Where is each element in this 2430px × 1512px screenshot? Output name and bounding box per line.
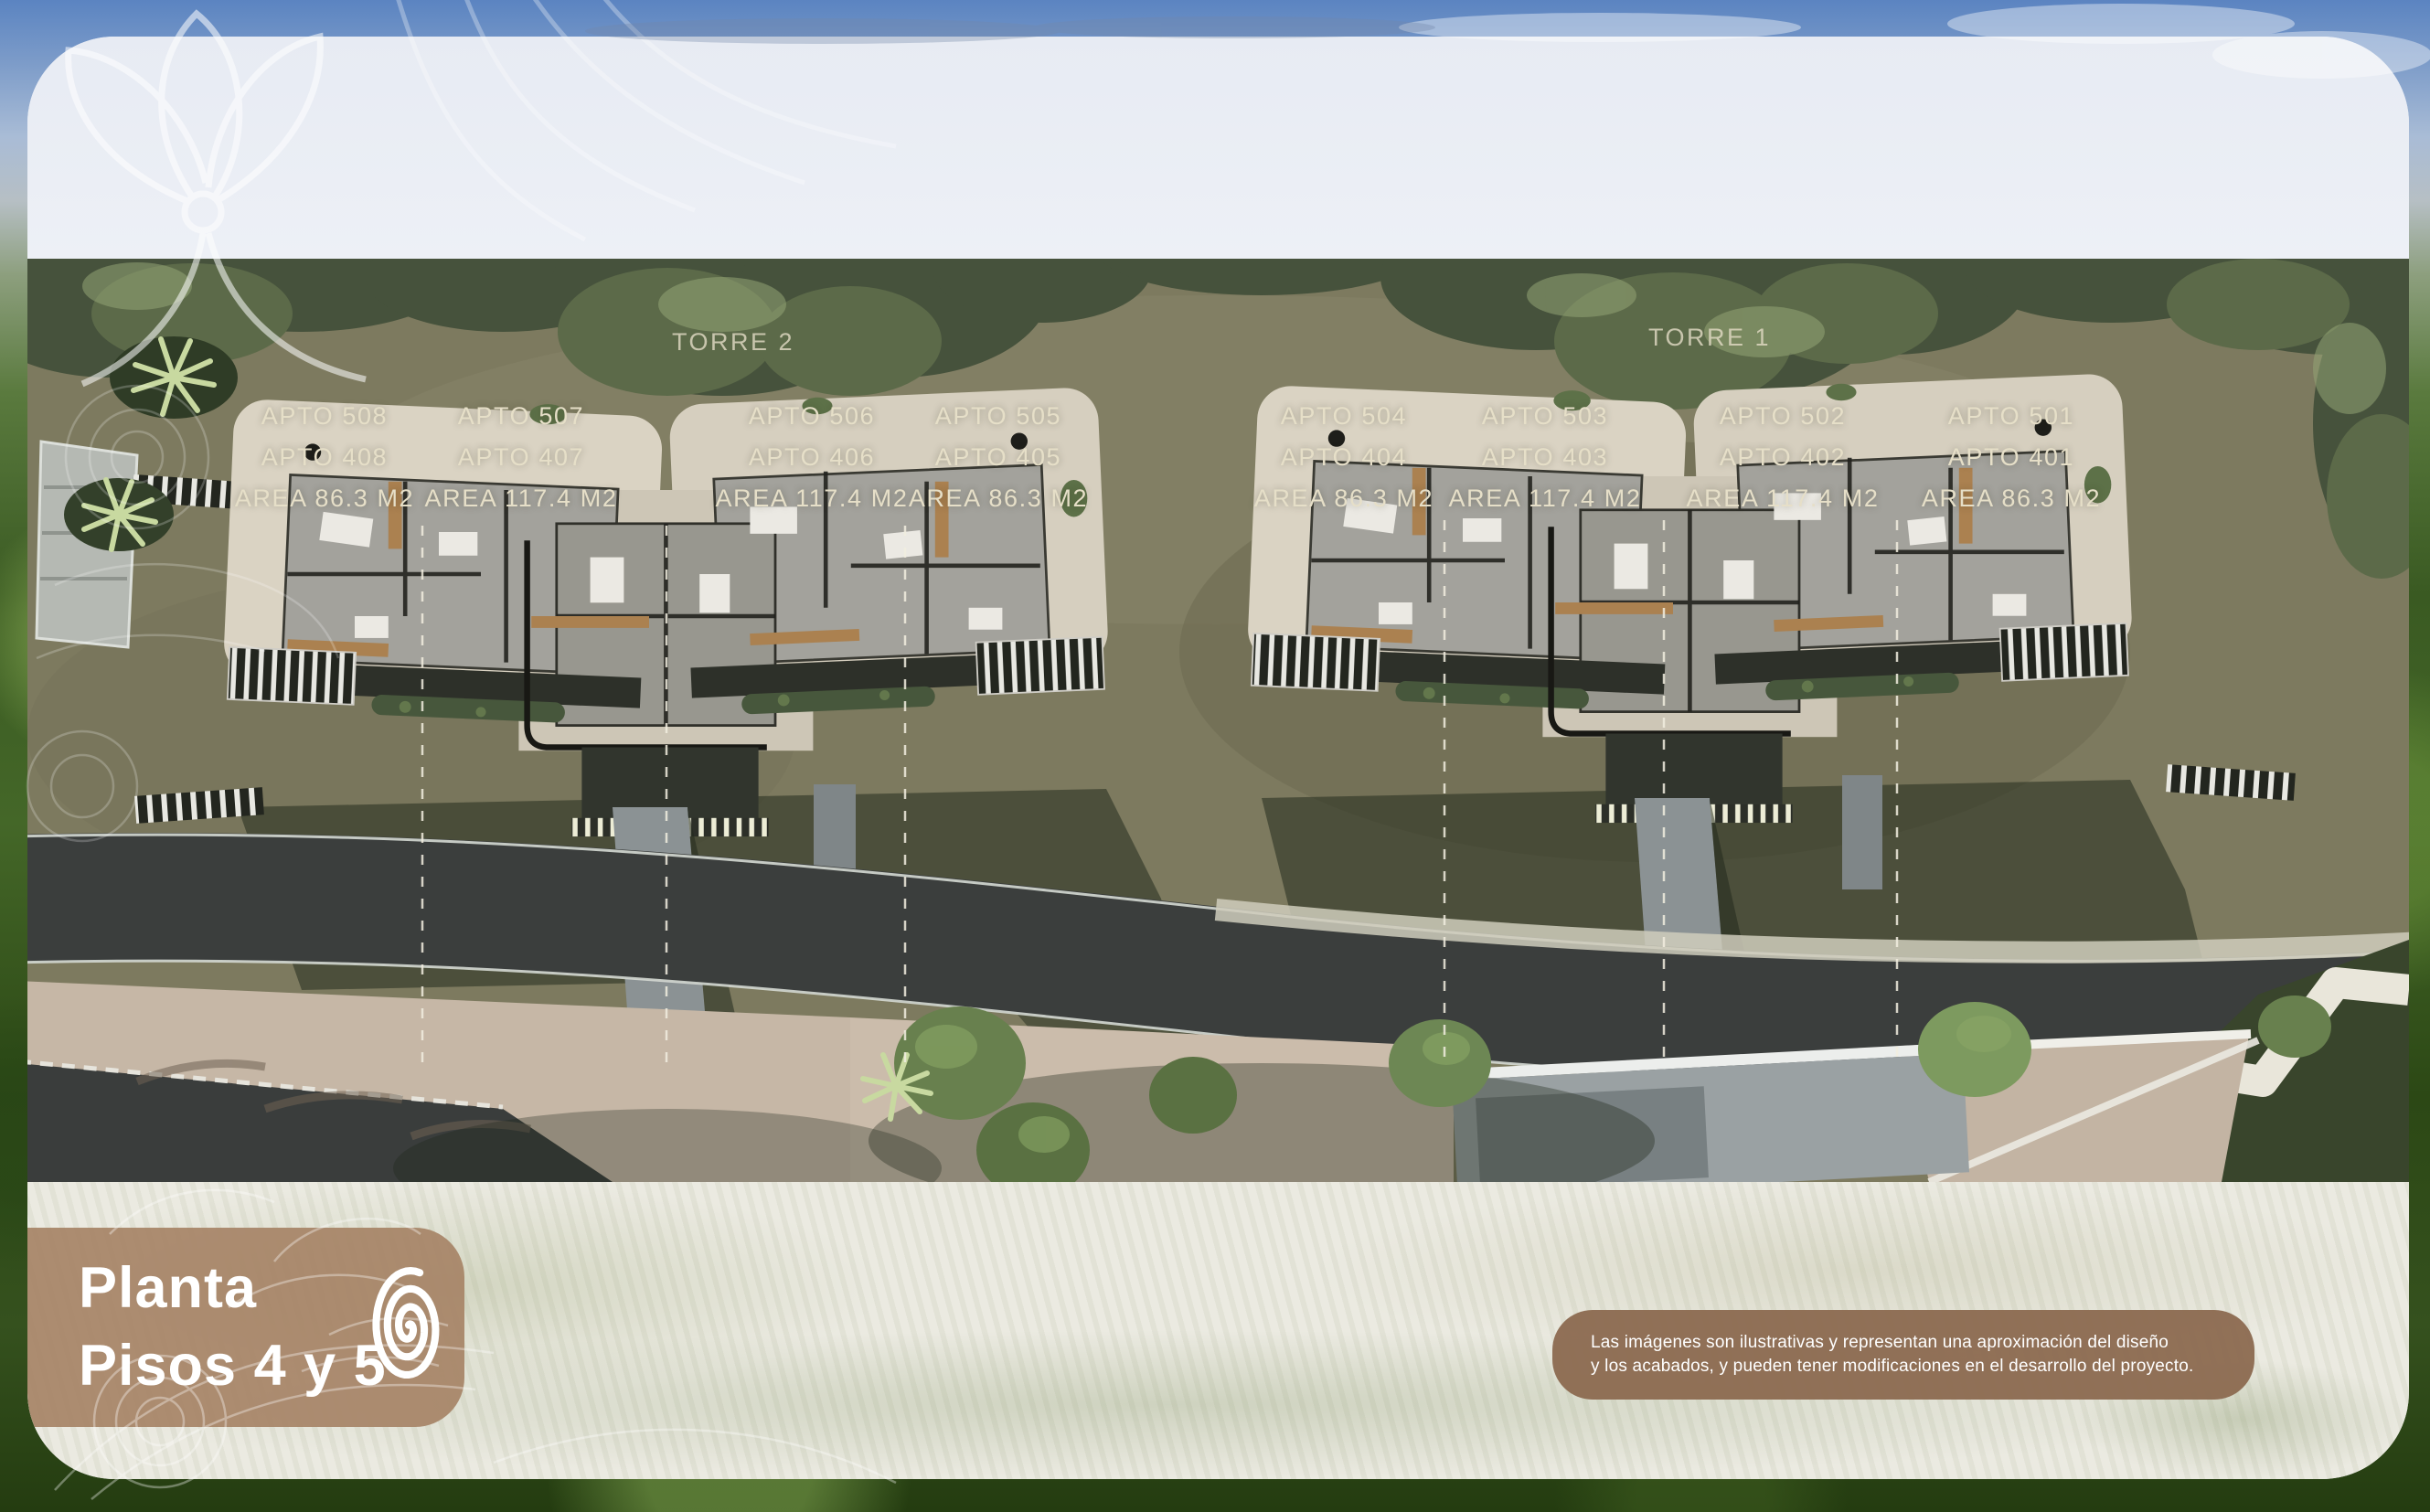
unit-label-column: APTO 506APTO 406AREA 117.4 M2 xyxy=(716,396,909,519)
tower-label-torre-1: TORRE 1 xyxy=(1648,324,1771,352)
apto-upper-label: APTO 508 xyxy=(235,396,414,437)
area-label: AREA 117.4 M2 xyxy=(425,478,618,519)
unit-label-column: APTO 504APTO 404AREA 86.3 M2 xyxy=(1254,396,1433,519)
area-label: AREA 117.4 M2 xyxy=(716,478,909,519)
apto-lower-label: APTO 405 xyxy=(909,437,1088,478)
disclaimer-line1: Las imágenes son ilustrativas y represen… xyxy=(1591,1331,2216,1356)
unit-label-column: APTO 503APTO 403AREA 117.4 M2 xyxy=(1449,396,1642,519)
apto-upper-label: APTO 502 xyxy=(1687,396,1880,437)
apto-lower-label: APTO 408 xyxy=(235,437,414,478)
unit-label-column: APTO 508APTO 408AREA 86.3 M2 xyxy=(235,396,414,519)
apto-lower-label: APTO 406 xyxy=(716,437,909,478)
apto-lower-label: APTO 402 xyxy=(1687,437,1880,478)
aerial-render: TORRE 2 TORRE 1 APTO 508APTO 408AREA 86.… xyxy=(27,259,2409,1182)
area-label: AREA 86.3 M2 xyxy=(909,478,1088,519)
area-label: AREA 117.4 M2 xyxy=(1687,478,1880,519)
area-label: AREA 86.3 M2 xyxy=(235,478,414,519)
apto-upper-label: APTO 503 xyxy=(1449,396,1642,437)
spiral-icon xyxy=(358,1245,459,1410)
apto-upper-label: APTO 501 xyxy=(1922,396,2101,437)
unit-label-column: APTO 501APTO 401AREA 86.3 M2 xyxy=(1922,396,2101,519)
apto-upper-label: APTO 504 xyxy=(1254,396,1433,437)
apto-upper-label: APTO 505 xyxy=(909,396,1088,437)
page-title: Planta Pisos 4 y 5 xyxy=(79,1250,387,1405)
page-title-line2: Pisos 4 y 5 xyxy=(79,1327,387,1405)
apto-lower-label: APTO 407 xyxy=(425,437,618,478)
area-label: AREA 117.4 M2 xyxy=(1449,478,1642,519)
apto-lower-label: APTO 401 xyxy=(1922,437,2101,478)
unit-label-column: APTO 505APTO 405AREA 86.3 M2 xyxy=(909,396,1088,519)
unit-label-column: APTO 507APTO 407AREA 117.4 M2 xyxy=(425,396,618,519)
apto-lower-label: APTO 403 xyxy=(1449,437,1642,478)
unit-label-column: APTO 502APTO 402AREA 117.4 M2 xyxy=(1687,396,1880,519)
tower-label-torre-2: TORRE 2 xyxy=(672,328,794,357)
disclaimer-panel: Las imágenes son ilustrativas y represen… xyxy=(1552,1310,2254,1400)
title-panel: Planta Pisos 4 y 5 xyxy=(27,1228,464,1427)
brochure-card: TORRE 2 TORRE 1 APTO 508APTO 408AREA 86.… xyxy=(27,37,2409,1479)
page-title-line1: Planta xyxy=(79,1250,387,1327)
area-label: AREA 86.3 M2 xyxy=(1254,478,1433,519)
card-top-band xyxy=(27,37,2409,259)
apto-lower-label: APTO 404 xyxy=(1254,437,1433,478)
apto-upper-label: APTO 506 xyxy=(716,396,909,437)
apto-upper-label: APTO 507 xyxy=(425,396,618,437)
area-label: AREA 86.3 M2 xyxy=(1922,478,2101,519)
disclaimer-line2: y los acabados, y pueden tener modificac… xyxy=(1591,1355,2216,1379)
